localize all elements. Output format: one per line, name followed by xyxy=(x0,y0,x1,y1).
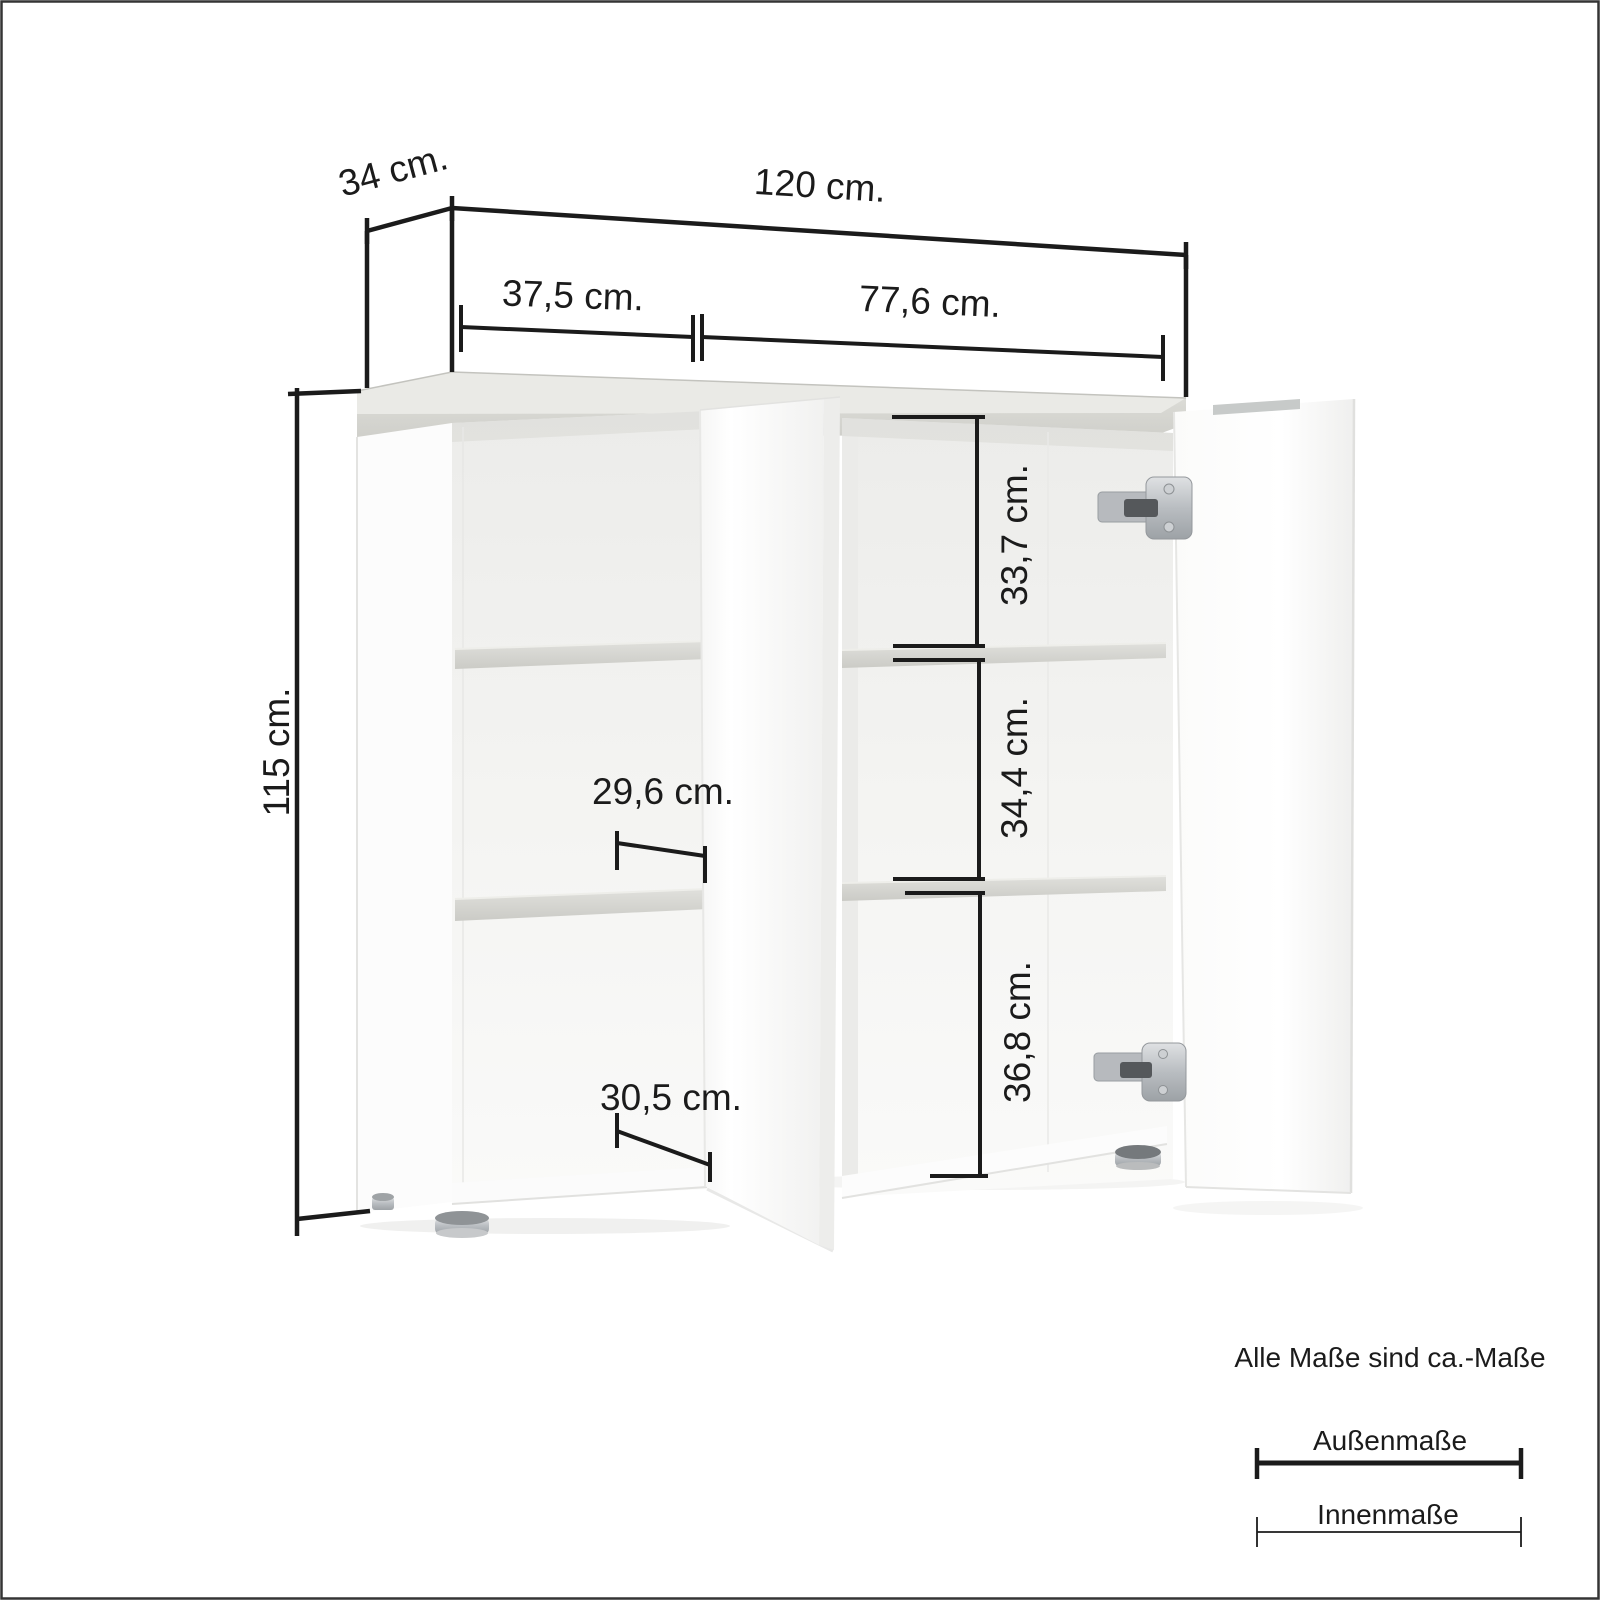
legend: Alle Maße sind ca.-Maße Außenmaße Innenm… xyxy=(1234,1342,1545,1547)
cabinet-illustration xyxy=(357,372,1354,1251)
foot-top xyxy=(1115,1145,1161,1159)
legend-inner-label: Innenmaße xyxy=(1317,1499,1459,1530)
adjustable-foot-right xyxy=(1115,1145,1161,1170)
hinge-screw xyxy=(1159,1086,1168,1095)
hinge-screw xyxy=(1159,1050,1168,1059)
adjustable-foot-front-left xyxy=(435,1211,489,1238)
foot-bottom xyxy=(1116,1162,1160,1170)
dimension-line-width xyxy=(452,208,1186,255)
dimension-label-left-section-width: 37,5 cm. xyxy=(501,272,644,318)
hinge-bolt xyxy=(1120,1062,1152,1078)
dimension-label-left-bottom-depth: 30,5 cm. xyxy=(600,1077,742,1118)
foot-top xyxy=(372,1193,394,1201)
left-door-open xyxy=(700,399,824,1245)
hinge-screw xyxy=(1164,522,1174,532)
dimension-label-right-middle-height: 34,4 cm. xyxy=(994,697,1035,839)
foot-bottom xyxy=(436,1228,488,1238)
floor-shadow xyxy=(1173,1201,1363,1215)
foot-top xyxy=(435,1211,489,1225)
dimension-label-left-middle-depth: 29,6 cm. xyxy=(592,771,734,812)
cabinet-left-side-panel xyxy=(357,423,452,1213)
dimension-label-right-bottom-height: 36,8 cm. xyxy=(997,961,1038,1103)
adjustable-foot-left-side xyxy=(372,1193,394,1210)
right-door-open xyxy=(1174,399,1354,1193)
dimension-label-width: 120 cm. xyxy=(753,161,887,210)
dimension-tick xyxy=(288,391,361,394)
dimension-tick xyxy=(297,1211,370,1219)
dimension-label-right-top-height: 33,7 cm. xyxy=(994,464,1035,606)
dimension-label-right-section-width: 77,6 cm. xyxy=(858,278,1002,325)
diagram-canvas: 34 cm. 120 cm. 37,5 cm. 77,6 cm. 115 cm.… xyxy=(0,0,1600,1600)
product-dimension-diagram: 34 cm. 120 cm. 37,5 cm. 77,6 cm. 115 cm.… xyxy=(0,0,1600,1600)
legend-outer-label: Außenmaße xyxy=(1313,1425,1467,1456)
floor-shadow xyxy=(360,1218,730,1234)
legend-note: Alle Maße sind ca.-Maße xyxy=(1234,1342,1545,1373)
dimension-line-right-section-width xyxy=(702,337,1163,357)
dimension-line-left-section-width xyxy=(461,327,693,337)
dimension-line-depth xyxy=(367,208,452,231)
hinge-bolt xyxy=(1124,499,1158,517)
dimension-label-height: 115 cm. xyxy=(256,688,297,817)
hinge-screw xyxy=(1164,484,1174,494)
dimension-label-depth: 34 cm. xyxy=(334,136,452,204)
right-compartment-left-wall xyxy=(842,418,858,1197)
